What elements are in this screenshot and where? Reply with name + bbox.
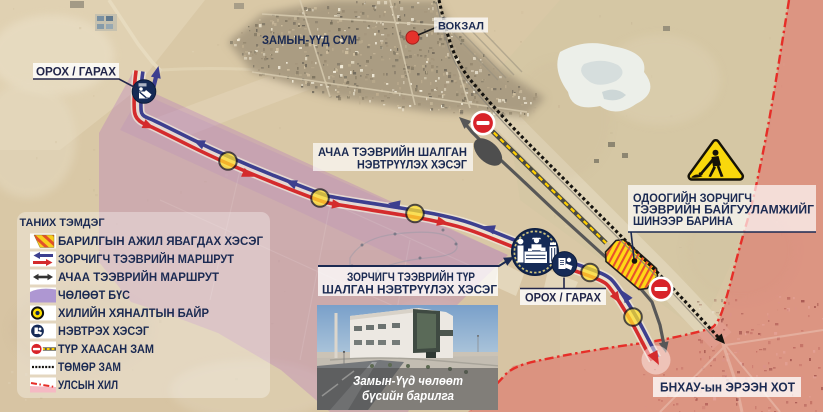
svg-text:БАРИЛГЫН АЖИЛ ЯВАГДАХ ХЭСЭГ: БАРИЛГЫН АЖИЛ ЯВАГДАХ ХЭСЭГ (58, 236, 263, 248)
svg-text:АЧАА ТЭЭВРИЙН МАРШРУТ: АЧАА ТЭЭВРИЙН МАРШРУТ (58, 271, 219, 284)
svg-text:ОРОХ / ГАРАХ: ОРОХ / ГАРАХ (525, 293, 601, 305)
svg-text:ЗАМЫН-ҮҮД СУМ: ЗАМЫН-ҮҮД СУМ (262, 33, 357, 47)
svg-text:ТӨМӨР ЗАМ: ТӨМӨР ЗАМ (58, 362, 121, 374)
svg-text:ТАНИХ ТЭМДЭГ: ТАНИХ ТЭМДЭГ (20, 217, 106, 229)
svg-text:НЭВТРҮҮЛЭХ ХЭСЭГ: НЭВТРҮҮЛЭХ ХЭСЭГ (357, 158, 467, 172)
svg-text:ЗОРЧИГЧ ТЭЭВРИЙН МАРШРУТ: ЗОРЧИГЧ ТЭЭВРИЙН МАРШРУТ (58, 253, 234, 266)
svg-text:ХИЛИЙН ХЯНАЛТЫН БАЙР: ХИЛИЙН ХЯНАЛТЫН БАЙР (58, 307, 209, 320)
svg-text:ШИНЭЭР БАРИНА: ШИНЭЭР БАРИНА (633, 214, 733, 228)
svg-text:Замын-Үүд чөлөөт: Замын-Үүд чөлөөт (353, 373, 463, 388)
svg-text:ОРОХ / ГАРАХ: ОРОХ / ГАРАХ (36, 67, 116, 79)
svg-text:бүсийн барилга: бүсийн барилга (362, 388, 454, 403)
svg-text:НЭВТРЭХ ХЭСЭГ: НЭВТРЭХ ХЭСЭГ (58, 326, 149, 338)
svg-text:ТҮР ХААСАН ЗАМ: ТҮР ХААСАН ЗАМ (58, 344, 154, 356)
svg-text:УЛСЫН ХИЛ: УЛСЫН ХИЛ (58, 380, 118, 392)
svg-text:ЧӨЛӨӨТ БҮС: ЧӨЛӨӨТ БҮС (58, 290, 130, 302)
svg-text:ШАЛГАН НЭВТРҮҮЛЭХ ХЭСЭГ: ШАЛГАН НЭВТРҮҮЛЭХ ХЭСЭГ (322, 283, 497, 297)
svg-text:БНХАУ-ын ЭРЭЭН ХОТ: БНХАУ-ын ЭРЭЭН ХОТ (660, 381, 795, 395)
svg-text:ВОКЗАЛ: ВОКЗАЛ (438, 21, 484, 33)
